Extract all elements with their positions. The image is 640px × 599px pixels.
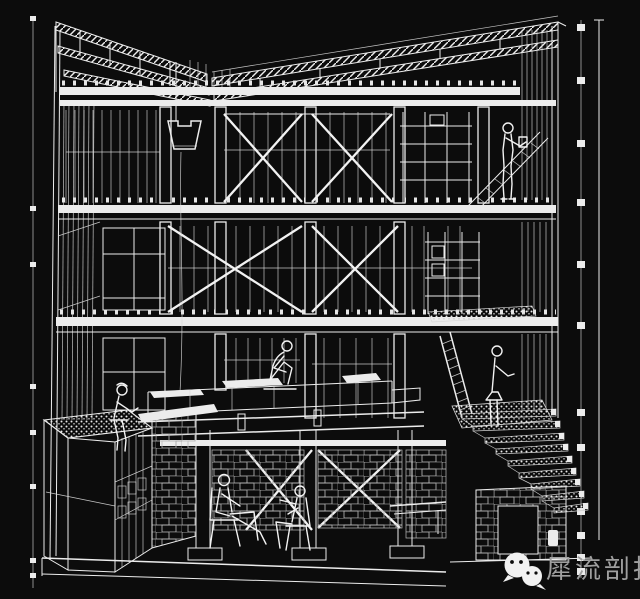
- watermark-text: 犀流剖报: [546, 555, 640, 585]
- screenshot-root: 犀流剖报: [0, 0, 640, 599]
- architectural-section-drawing: 犀流剖报: [0, 0, 640, 599]
